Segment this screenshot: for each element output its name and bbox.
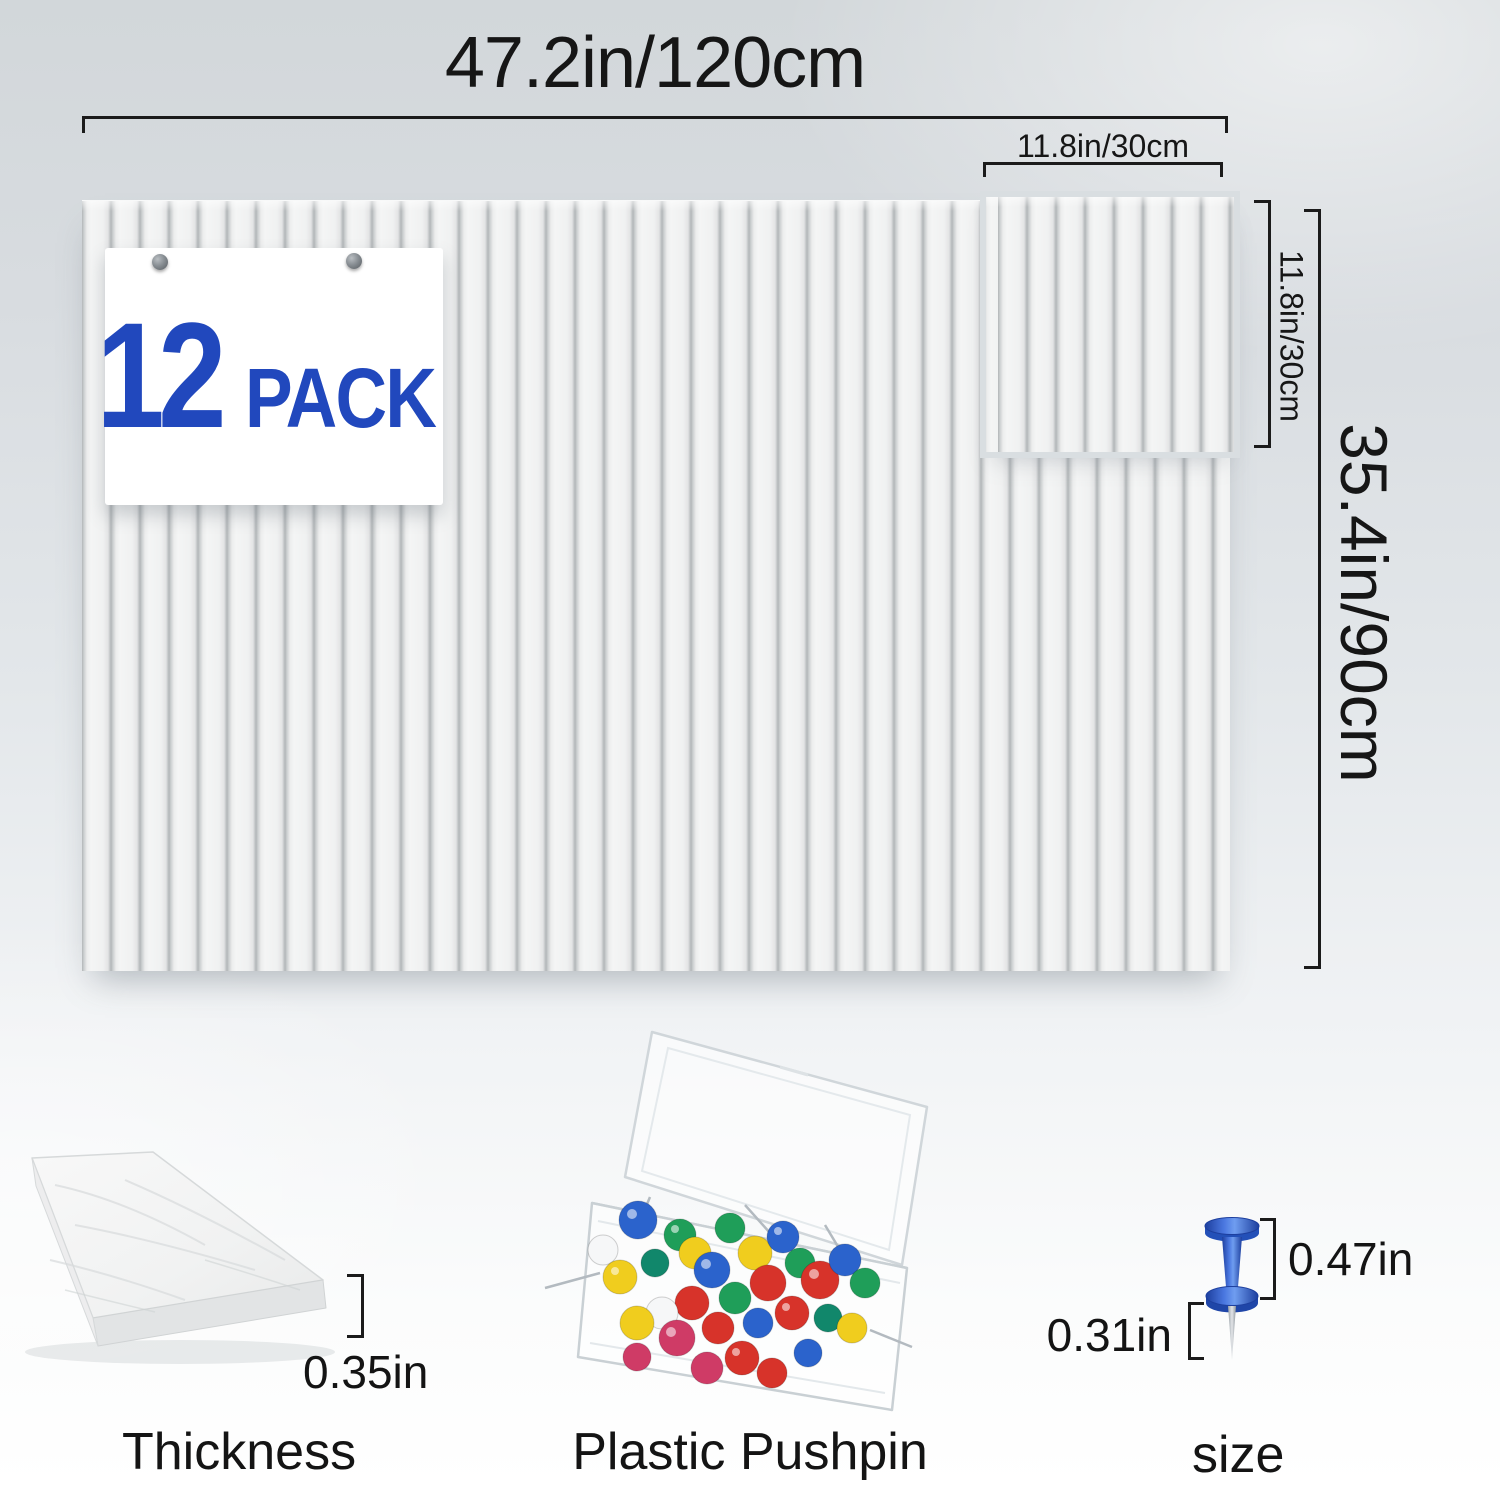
slat-tile-image bbox=[986, 197, 1234, 452]
total-height-label: 35.4in/90cm bbox=[1326, 423, 1402, 783]
pushpin-caption: Plastic Pushpin bbox=[560, 1422, 940, 1482]
total-height-bracket bbox=[1304, 209, 1321, 969]
tile-width-bracket bbox=[983, 162, 1223, 177]
pin-needle-length-label: 0.31in bbox=[1040, 1308, 1172, 1362]
product-infographic: 47.2in/120cm 11.8in/30cm 12 PACK 11.8in/… bbox=[0, 0, 1500, 1486]
pushpin-box-image bbox=[540, 1025, 980, 1430]
thickness-bracket bbox=[347, 1274, 364, 1338]
pin-needle-bracket bbox=[1188, 1302, 1204, 1360]
felt-slab-image bbox=[5, 1140, 355, 1370]
pin-head-height-label: 0.47in bbox=[1288, 1232, 1413, 1286]
size-caption: size bbox=[1192, 1425, 1284, 1485]
pack-count: 12 bbox=[96, 300, 220, 450]
thickness-caption: Thickness bbox=[122, 1422, 356, 1482]
total-width-label: 47.2in/120cm bbox=[82, 22, 1228, 104]
tile-height-bracket bbox=[1254, 200, 1271, 448]
pack-label: PACK bbox=[245, 356, 435, 440]
pin-head-bracket bbox=[1260, 1218, 1276, 1300]
tile-width-label: 11.8in/30cm bbox=[983, 128, 1223, 165]
pack-badge-card: 12 PACK bbox=[105, 248, 443, 505]
card-pin-icon bbox=[346, 253, 362, 269]
thickness-value: 0.35in bbox=[303, 1345, 428, 1399]
card-pin-icon bbox=[152, 254, 168, 270]
